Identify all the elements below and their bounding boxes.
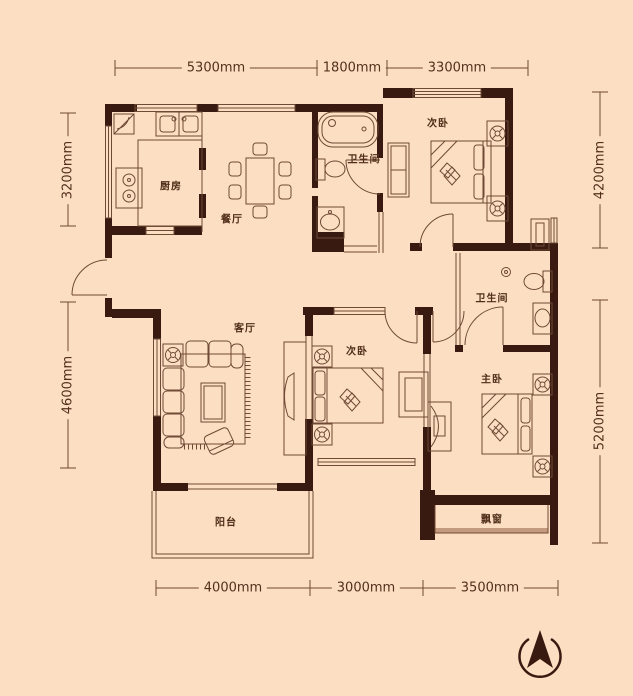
nightstand — [312, 424, 332, 445]
armchair — [203, 426, 235, 455]
bed — [482, 394, 532, 454]
master-fixtures — [428, 374, 552, 477]
north-compass-icon — [519, 630, 560, 677]
dim-bottom-3: 3500mm — [456, 581, 524, 596]
nightstand — [533, 456, 552, 477]
wash-basin — [533, 303, 552, 334]
balcony-label: 阳台 — [215, 514, 237, 529]
dim-left-1: 3200mm — [61, 136, 76, 204]
dim-bottom-2: 3000mm — [332, 581, 400, 596]
dim-bottom-1: 4000mm — [199, 581, 267, 596]
bedroom-top-fixtures — [388, 121, 508, 221]
corner-cabinet — [114, 114, 134, 134]
living-label: 客厅 — [234, 320, 256, 335]
dim-right-1: 4200mm — [593, 136, 608, 204]
bath-top-label: 卫生间 — [348, 151, 381, 166]
bedroom-top-label: 次卧 — [427, 115, 449, 130]
dim-right-2: 5200mm — [593, 387, 608, 455]
wardrobe — [428, 402, 451, 451]
tv-cabinet — [284, 342, 306, 455]
bath-right-door — [465, 307, 503, 345]
nightstand — [533, 374, 552, 395]
side-table-plant — [163, 344, 183, 366]
walls — [105, 88, 558, 545]
dining-table-set — [229, 143, 291, 218]
kitchen-fixtures — [114, 112, 202, 226]
toilet — [316, 159, 345, 180]
bath-top-fixtures — [316, 112, 378, 238]
floor-plan: 厨房 餐厅 卫生间 次卧 客厅 次卧 卫生间 主卧 阳台 飘窗 5300mm 1… — [0, 0, 633, 696]
dim-top-3: 3300mm — [423, 61, 491, 76]
toilet — [524, 271, 552, 292]
kitchen-label: 厨房 — [160, 178, 182, 193]
living-fixtures — [163, 341, 306, 456]
bedroom-top-door — [420, 214, 453, 247]
nightstand — [487, 121, 508, 146]
bath-right-label: 卫生间 — [476, 290, 509, 305]
bay-window-label: 飘窗 — [481, 511, 503, 526]
master-door — [433, 311, 464, 342]
wardrobe — [388, 143, 409, 197]
dining-label: 餐厅 — [221, 211, 243, 226]
bed — [313, 368, 383, 423]
dim-top-2: 1800mm — [318, 61, 386, 76]
coffee-table — [201, 383, 225, 422]
kitchen-sink — [156, 112, 202, 136]
bathtub — [318, 112, 378, 147]
nightstand — [487, 196, 508, 221]
dim-top-1: 5300mm — [182, 61, 250, 76]
master-label: 主卧 — [481, 371, 503, 386]
bedroom-mid-door — [385, 311, 417, 343]
dim-left-2: 4600mm — [61, 351, 76, 419]
bed — [431, 141, 491, 203]
bedroom-mid-label: 次卧 — [346, 343, 368, 358]
nightstand — [312, 346, 332, 367]
floor-plan-drawing — [0, 0, 633, 696]
floor-drain — [502, 268, 511, 277]
bedroom-mid-fixtures — [312, 346, 428, 445]
entry-door — [72, 260, 107, 295]
